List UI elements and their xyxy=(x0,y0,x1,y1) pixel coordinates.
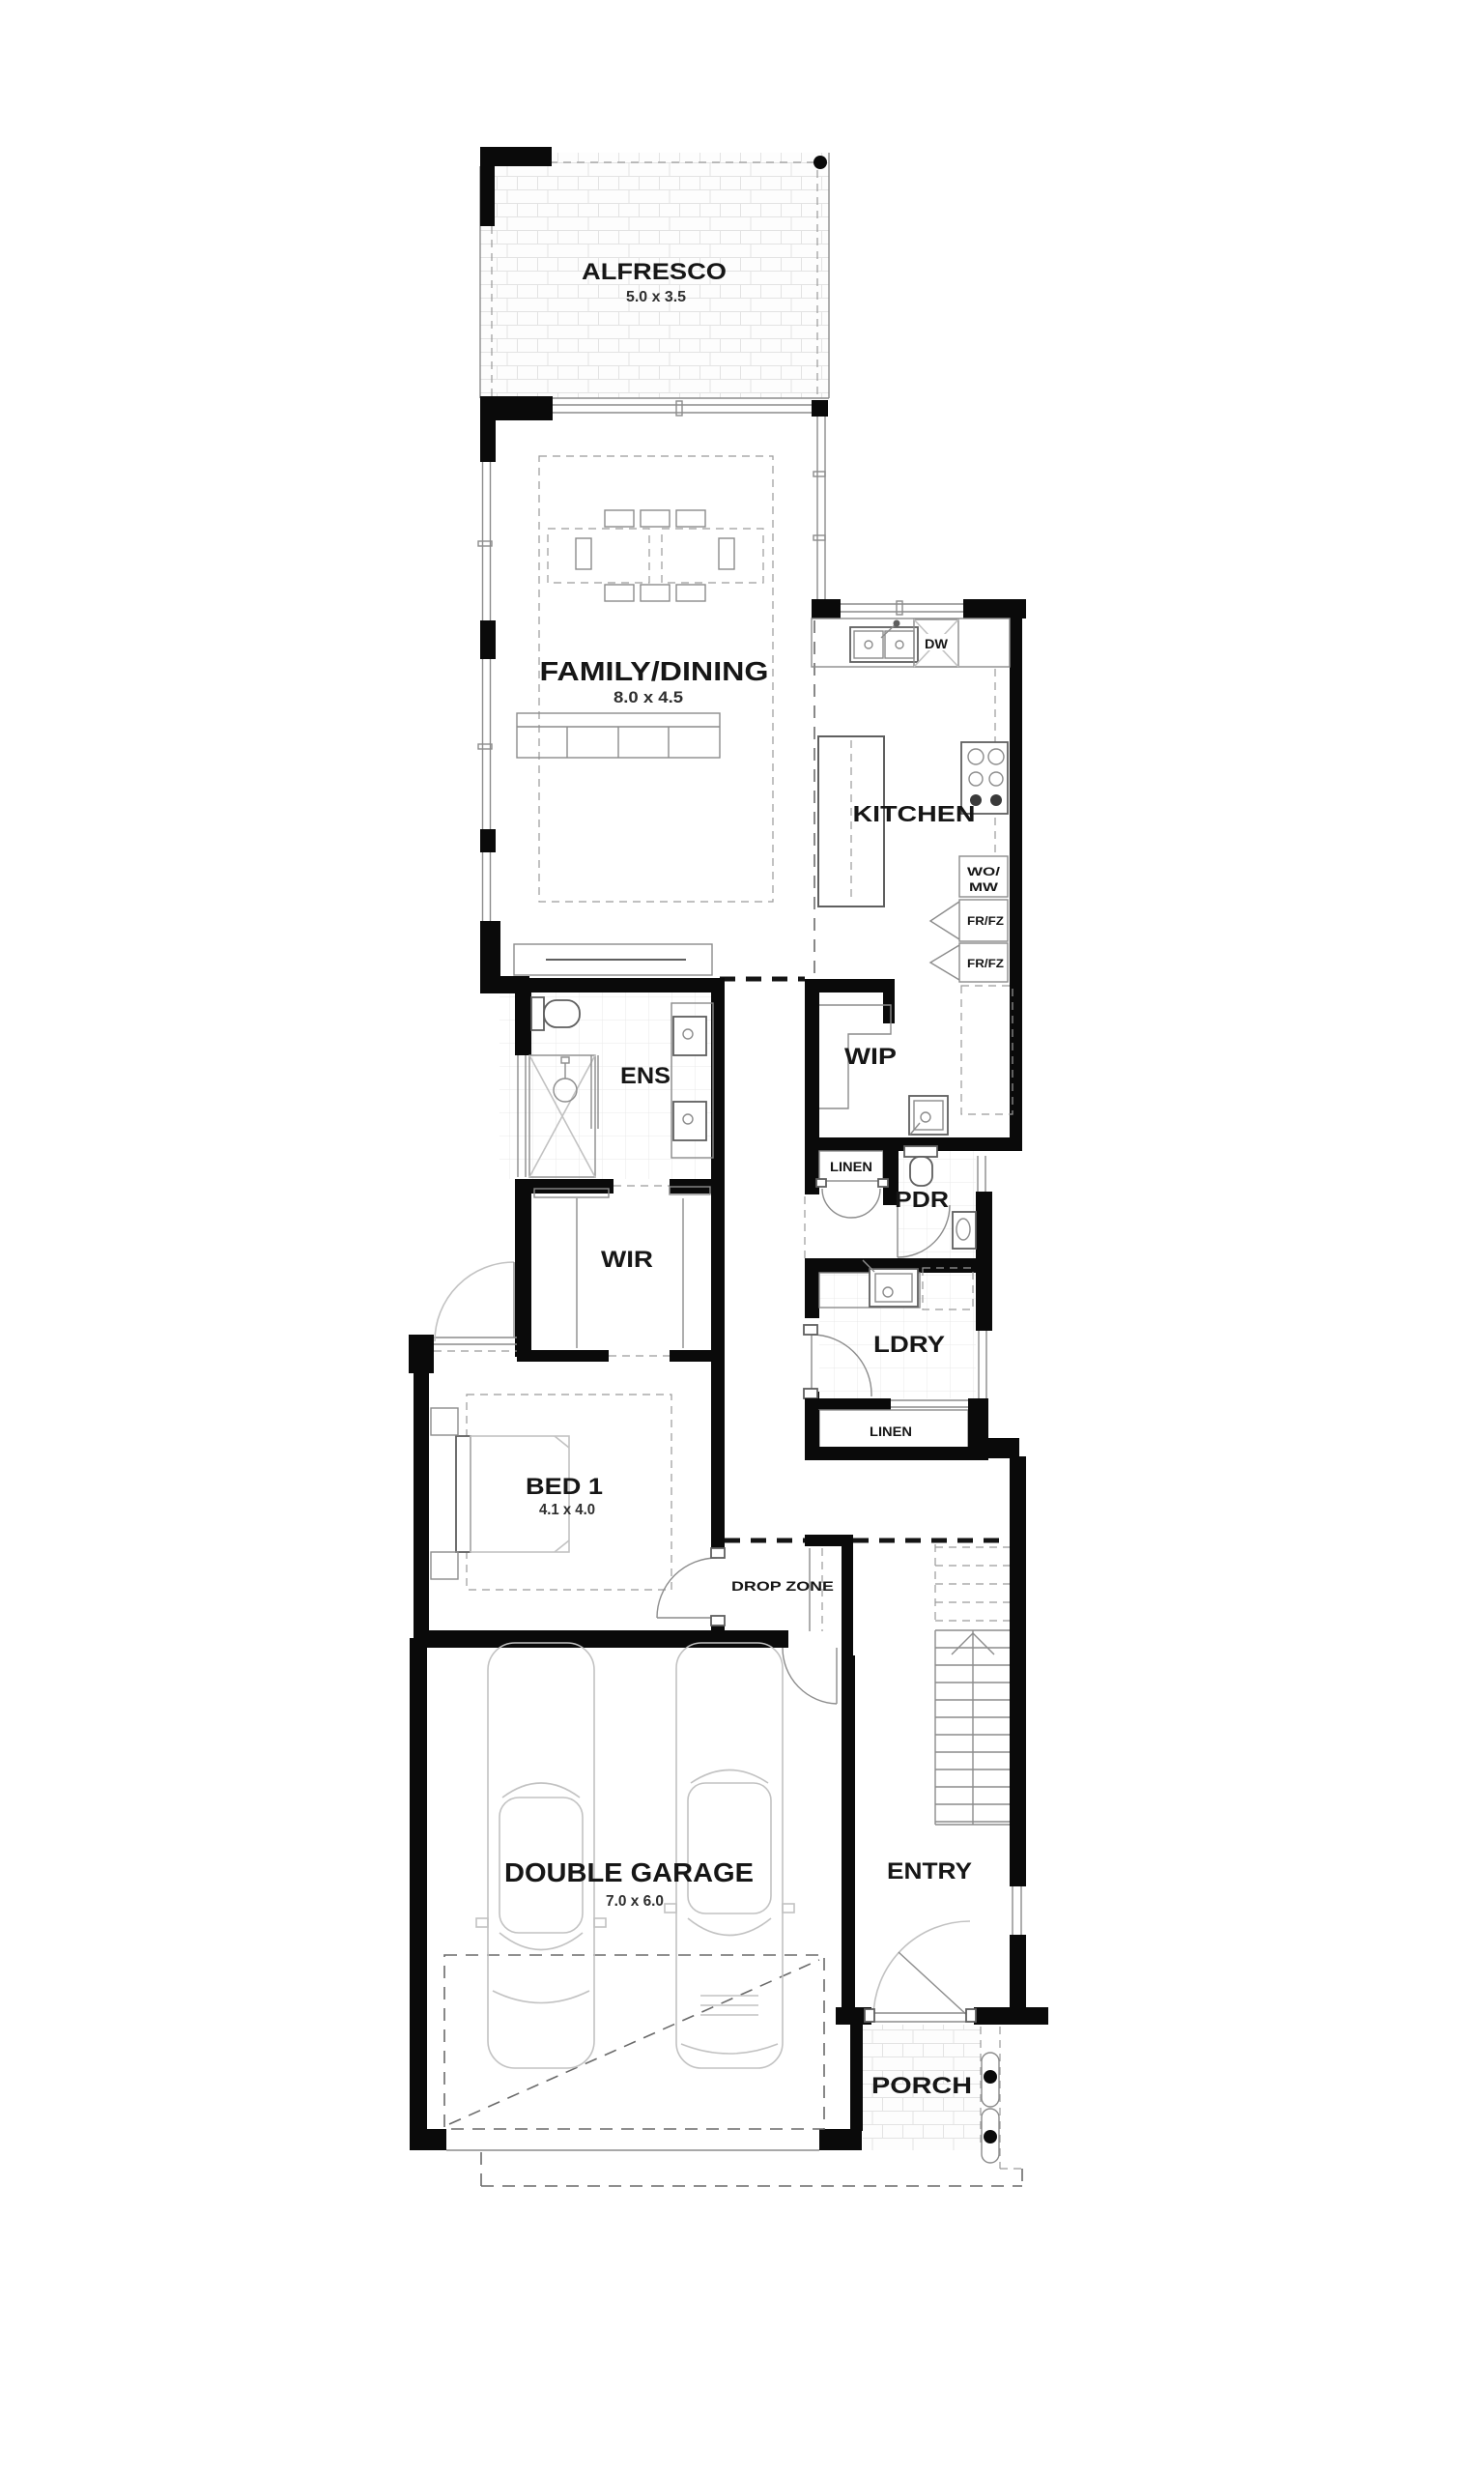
family-west-windows xyxy=(478,396,500,993)
floor-plan-page: FAMILY/DINING 8.0 x 4.5 ALFRESCO 5.0 x 3… xyxy=(0,0,1484,2474)
ens-area: ENS xyxy=(480,976,725,1194)
bed1-area: BED 1 4.1 x 4.0 xyxy=(414,1351,725,1638)
pantry-sink-icon xyxy=(909,1096,948,1135)
double-sink-icon xyxy=(850,620,918,663)
ldry-sliding-door xyxy=(891,1400,979,1407)
entry-label: ENTRY xyxy=(887,1858,972,1884)
fridge-label-2: FR/FZ xyxy=(967,957,1004,970)
porch-area: PORCH xyxy=(850,2025,1022,2169)
linen-hall-area: LINEN xyxy=(805,1143,899,1218)
alfresco-post xyxy=(813,156,827,169)
oven-microwave-label-1: WO/ xyxy=(967,865,1001,878)
linen-laundry-label: LINEN xyxy=(870,1424,912,1439)
wir-area: WIR xyxy=(515,1181,725,1362)
porch-pillar-1 xyxy=(982,2053,999,2107)
garage-internal-door xyxy=(783,1648,837,1704)
family-dining-area: FAMILY/DINING 8.0 x 4.5 xyxy=(478,396,828,993)
alfresco-dims: 5.0 x 3.5 xyxy=(626,289,686,305)
porch-pillar-2 xyxy=(982,2109,999,2163)
pdr-basin-icon xyxy=(953,1212,976,1249)
family-dining-label: FAMILY/DINING xyxy=(540,656,769,686)
drop-zone-label: DROP ZONE xyxy=(731,1578,834,1594)
family-dining-dims: 8.0 x 4.5 xyxy=(614,688,683,706)
garage-label: DOUBLE GARAGE xyxy=(504,1857,754,1887)
pantry-shelves-dashed xyxy=(961,986,1013,1114)
bed1-door xyxy=(657,1558,717,1618)
wip-label: WIP xyxy=(844,1044,897,1070)
linen-hall-label: LINEN xyxy=(830,1159,872,1174)
wip-area: WIP xyxy=(805,979,1022,1151)
robe-rails xyxy=(577,1198,683,1348)
dishwasher-label: DW xyxy=(925,636,949,651)
toilet-icon xyxy=(531,997,580,1030)
family-east-window xyxy=(813,417,825,599)
kitchen-label: KITCHEN xyxy=(853,801,976,826)
wir-label: WIR xyxy=(601,1247,653,1273)
sliding-door-alfresco xyxy=(553,401,812,416)
garage-dims: 7.0 x 6.0 xyxy=(606,1893,664,1910)
ens-label: ENS xyxy=(620,1063,671,1089)
sofa xyxy=(517,713,720,758)
fridge-label-1: FR/FZ xyxy=(967,914,1004,928)
alfresco-label: ALFRESCO xyxy=(582,259,727,285)
tv-unit xyxy=(514,944,712,975)
ldry-label: LDRY xyxy=(873,1332,945,1358)
car-icon-2 xyxy=(665,1643,794,2068)
porch-label: PORCH xyxy=(871,2073,972,2099)
bed1-label: BED 1 xyxy=(526,1474,603,1500)
dining-table xyxy=(548,510,763,601)
car-icon-1 xyxy=(476,1643,606,2068)
bed1-dims: 4.1 x 4.0 xyxy=(539,1502,595,1518)
driveway-dashed xyxy=(481,2152,1022,2186)
pdr-label: PDR xyxy=(895,1187,949,1212)
stairs xyxy=(935,1544,1010,1825)
oven-microwave-label-2: MW xyxy=(969,880,999,894)
floor-plan-drawing: FAMILY/DINING 8.0 x 4.5 ALFRESCO 5.0 x 3… xyxy=(0,0,1484,2474)
